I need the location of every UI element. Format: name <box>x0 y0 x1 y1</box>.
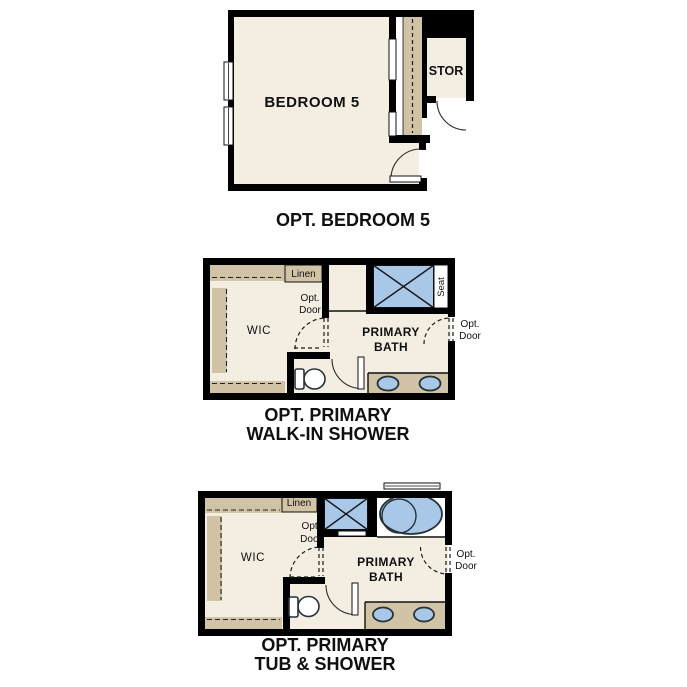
opt-door-entry-label-2: Door <box>459 331 481 342</box>
opt-door-label-1: Opt. <box>301 293 320 304</box>
primary-bath-label-2: BATH <box>369 570 403 584</box>
primary-bath-label-1: PRIMARY <box>362 325 420 339</box>
door-swing-arc <box>437 101 466 130</box>
opt-door-label-1: Opt. <box>302 521 321 532</box>
opening-right-upper <box>389 39 396 80</box>
toilet-tank <box>295 369 304 389</box>
sink-left <box>373 608 393 622</box>
plan-opt-bedroom-5: BEDROOM 5 STOR OPT. BEDROOM 5 <box>224 10 474 230</box>
plan3-title-line2: TUB & SHOWER <box>255 654 396 674</box>
wic-shelf-left <box>212 288 227 373</box>
seat-label: Seat <box>436 277 447 297</box>
primary-bath-label-2: BATH <box>374 340 408 354</box>
sink-right <box>420 377 441 391</box>
bedroom5-label: BEDROOM 5 <box>264 94 359 111</box>
wic-label: WIC <box>247 325 271 337</box>
sink-right <box>414 608 434 622</box>
opt-door-label-2: Door <box>299 305 321 316</box>
plan2-title-line2: WALK-IN SHOWER <box>247 424 410 444</box>
door-leaf <box>390 176 421 182</box>
opt-door-entry-label-1: Opt. <box>461 319 480 330</box>
wic-shelf-bottom <box>210 381 285 393</box>
floorplan-sheet: BEDROOM 5 STOR OPT. BEDROOM 5 <box>0 0 687 687</box>
wic-label: WIC <box>241 552 265 564</box>
primary-bath-label-1: PRIMARY <box>357 555 415 569</box>
opt-door-entry-label-1: Opt. <box>457 549 476 560</box>
plan2-title-line1: OPT. PRIMARY <box>264 405 391 425</box>
linen-label: Linen <box>291 269 315 280</box>
shower <box>324 498 368 530</box>
opt-door-entry-label-2: Door <box>455 561 477 572</box>
sink-left <box>378 377 399 391</box>
door-leaf <box>358 357 364 389</box>
vanity <box>368 373 448 393</box>
plan-opt-primary-tub-and-shower: Linen Opt. Door WIC PRIMARY BATH Opt. Do… <box>198 483 478 674</box>
storage-label: STOR <box>429 64 464 78</box>
hall-chase-strip <box>403 17 422 135</box>
vanity <box>365 602 445 629</box>
wic-shelf-left <box>207 516 222 601</box>
shower-door-glass <box>338 531 366 536</box>
toilet <box>289 597 319 618</box>
wic-shelf-top <box>205 498 282 513</box>
opening-right-lower <box>389 112 396 136</box>
opt-door-label-2: Door <box>300 534 322 545</box>
plan-opt-primary-walk-in-shower: Linen Opt. Door WIC PRIMARY BATH Seat Op… <box>203 258 482 444</box>
storage-door <box>437 101 466 130</box>
toilet <box>295 369 325 389</box>
plan1-title: OPT. BEDROOM 5 <box>276 210 430 230</box>
toilet-tank <box>289 597 298 617</box>
linen-label: Linen <box>287 498 311 509</box>
plan3-title-line1: OPT. PRIMARY <box>261 635 388 655</box>
wic-shelf-bottom <box>205 617 282 629</box>
wic-shelf-top <box>210 265 285 281</box>
door-leaf <box>352 583 358 615</box>
